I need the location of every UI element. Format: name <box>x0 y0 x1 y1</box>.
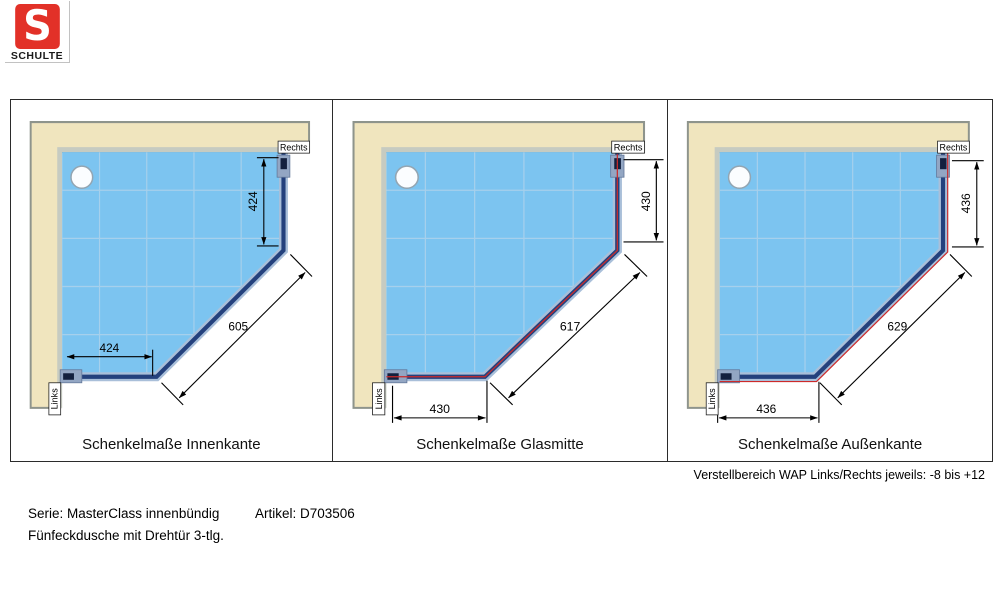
panel-caption-innenkante: Schenkelmaße Innenkante <box>11 436 332 453</box>
dim-value-diagonal: 629 <box>888 320 908 334</box>
dim-value-bottom-leg: 424 <box>100 341 120 355</box>
label-links: Links <box>373 388 383 409</box>
drain <box>729 166 751 188</box>
shower-drawing-aussenkante: 436 436 629 Rechts Links <box>668 100 992 461</box>
dim-value-bottom-leg: 430 <box>429 402 450 416</box>
shower-floor <box>720 152 948 373</box>
logo-letter: S <box>23 1 52 50</box>
product-description: Fünfeckdusche mit Drehtür 3-tlg. <box>28 528 224 543</box>
dim-value-right-leg: 430 <box>639 191 653 211</box>
label-links: Links <box>50 388 60 410</box>
panel-aussenkante: 436 436 629 Rechts Links Schenkelmaße Au… <box>667 100 992 461</box>
adjustment-range-note: Verstellbereich WAP Links/Rechts jeweils… <box>694 468 985 482</box>
panel-caption-glasmitte: Schenkelmaße Glasmitte <box>333 436 668 453</box>
dim-value-bottom-leg: 436 <box>757 402 777 416</box>
panel-innenkante: 424 424 605 Rechts Links Schenkelmaße In… <box>11 100 332 461</box>
shower-floor <box>62 152 288 373</box>
drain <box>395 166 418 188</box>
dim-value-right-leg: 436 <box>959 193 973 213</box>
dim-value-right-leg: 424 <box>246 191 260 211</box>
shower-drawing-glasmitte: 430 430 617 Rechts Links <box>333 100 668 461</box>
panel-glasmitte: 430 430 617 Rechts Links Schenkelmaße Gl… <box>332 100 668 461</box>
drain <box>71 166 93 188</box>
diagram-row: 424 424 605 Rechts Links Schenkelmaße In… <box>10 99 993 462</box>
label-rechts: Rechts <box>940 143 968 153</box>
logo-brand-text: SCHULTE <box>5 50 69 62</box>
series-label: Serie: MasterClass innenbündig <box>28 506 219 521</box>
label-links: Links <box>708 388 718 410</box>
article-number: Artikel: D703506 <box>255 506 355 521</box>
dim-value-diagonal: 617 <box>560 320 581 334</box>
dim-value-diagonal: 605 <box>228 320 248 334</box>
label-rechts: Rechts <box>280 143 308 153</box>
schulte-logo: S SCHULTE <box>5 1 70 63</box>
shower-floor <box>386 152 622 373</box>
label-rechts: Rechts <box>613 143 642 153</box>
logo-s-mark: S <box>15 4 60 49</box>
shower-drawing-innenkante: 424 424 605 Rechts Links <box>11 100 332 461</box>
panel-caption-aussenkante: Schenkelmaße Außenkante <box>668 436 992 453</box>
